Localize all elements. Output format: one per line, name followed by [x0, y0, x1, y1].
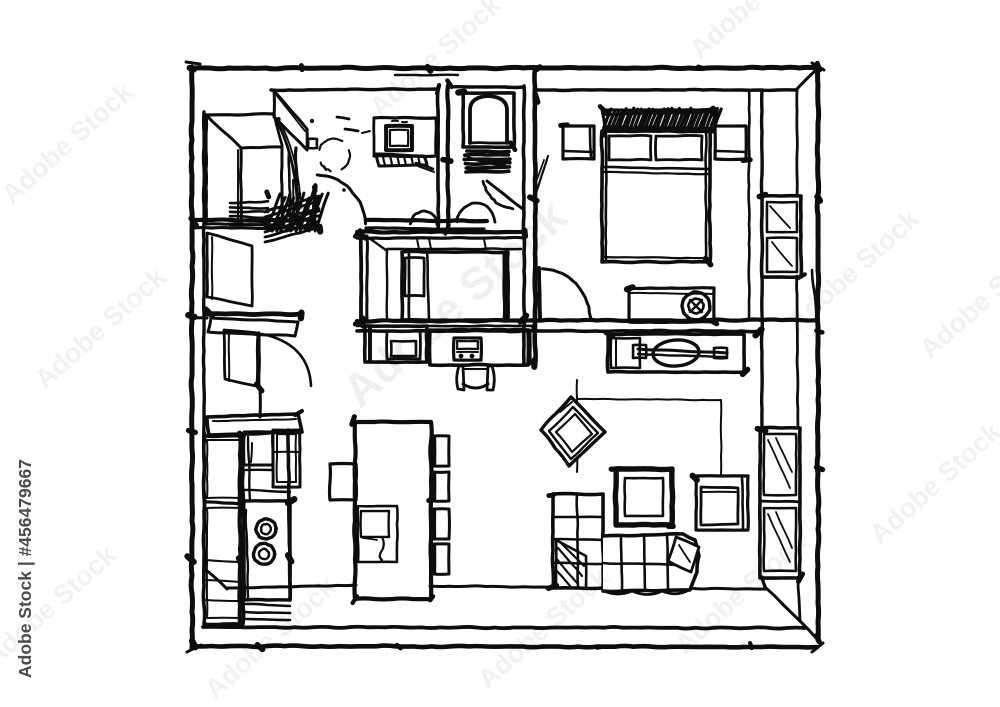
svg-text:Adobe Stock | #456479667: Adobe Stock | #456479667 [15, 459, 35, 678]
